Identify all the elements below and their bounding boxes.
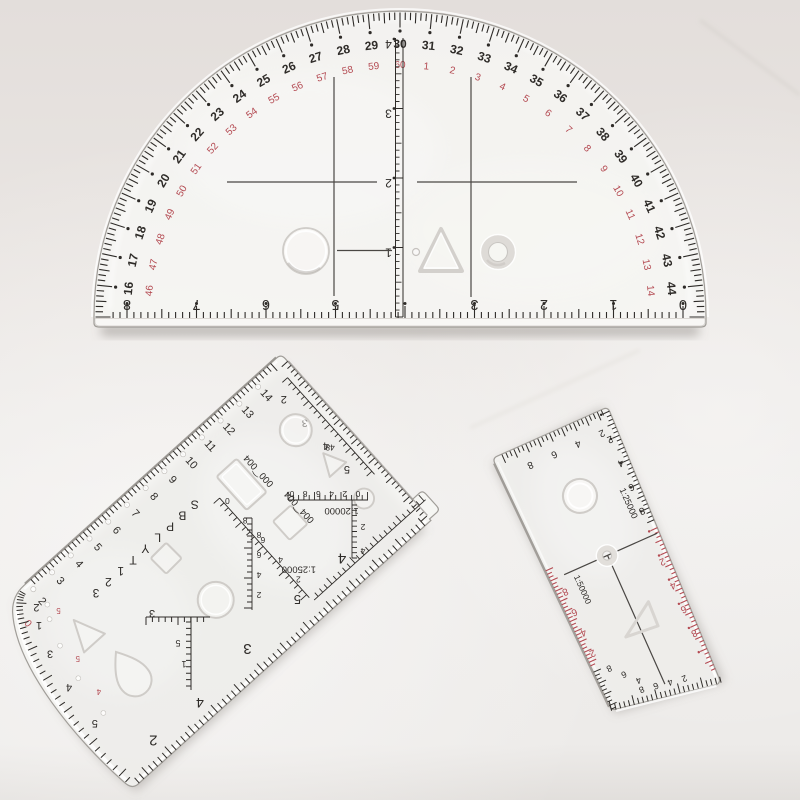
svg-text:3: 3: [470, 296, 478, 312]
svg-text:2: 2: [281, 393, 287, 405]
svg-text:6: 6: [256, 550, 261, 560]
svg-text:L: L: [154, 531, 161, 545]
svg-text:3: 3: [243, 640, 251, 657]
svg-text:6: 6: [262, 296, 270, 312]
svg-text:4: 4: [385, 37, 392, 51]
svg-text:P: P: [166, 520, 174, 534]
svg-text:2: 2: [149, 731, 157, 748]
svg-text:4: 4: [329, 489, 334, 499]
svg-text:31: 31: [421, 38, 436, 53]
svg-text:2: 2: [360, 522, 365, 532]
svg-text:5: 5: [56, 606, 61, 615]
svg-text:1: 1: [385, 246, 392, 260]
svg-text:3: 3: [149, 607, 155, 619]
svg-text:4: 4: [338, 549, 346, 566]
svg-text:1: 1: [181, 659, 186, 669]
svg-text:0: 0: [679, 296, 687, 312]
svg-text:4: 4: [278, 555, 283, 565]
svg-text:2: 2: [33, 601, 39, 613]
svg-text:8: 8: [123, 296, 131, 312]
svg-text:T: T: [129, 553, 137, 567]
svg-text:29: 29: [364, 38, 379, 53]
svg-text:3: 3: [47, 647, 53, 659]
svg-text:Y: Y: [141, 542, 149, 556]
svg-text:8: 8: [303, 489, 308, 499]
svg-text:46: 46: [144, 284, 156, 297]
svg-text:3: 3: [92, 586, 99, 600]
svg-text:2: 2: [296, 575, 301, 585]
svg-text:59: 59: [368, 61, 381, 73]
svg-text:44: 44: [664, 281, 679, 296]
svg-text:0: 0: [289, 489, 294, 499]
svg-text:5: 5: [92, 717, 98, 729]
svg-text:0: 0: [225, 496, 230, 506]
svg-text:B: B: [178, 508, 186, 522]
svg-text:S: S: [191, 497, 199, 511]
svg-text:5: 5: [331, 296, 339, 312]
svg-text:4: 4: [256, 570, 261, 580]
svg-text:2: 2: [105, 575, 112, 589]
svg-text:1: 1: [117, 564, 124, 578]
svg-text:16: 16: [121, 281, 136, 296]
svg-text:2: 2: [256, 590, 261, 600]
svg-text:6: 6: [316, 489, 321, 499]
svg-text:7: 7: [192, 296, 200, 312]
svg-text:1: 1: [36, 619, 42, 631]
svg-text:8: 8: [243, 515, 248, 525]
svg-text:14: 14: [644, 285, 656, 298]
svg-text:4: 4: [96, 687, 101, 696]
svg-text:2: 2: [385, 176, 392, 190]
svg-text:1: 1: [609, 296, 617, 312]
svg-text:2: 2: [342, 489, 347, 499]
svg-text:4: 4: [196, 695, 204, 711]
svg-text:48: 48: [325, 442, 335, 452]
svg-text:2: 2: [540, 296, 548, 312]
svg-text:60: 60: [394, 60, 406, 71]
svg-text:0: 0: [355, 489, 360, 499]
svg-text:3: 3: [385, 107, 392, 121]
svg-text:5: 5: [294, 592, 301, 607]
svg-text:5: 5: [75, 654, 80, 663]
svg-text:4: 4: [66, 681, 72, 693]
svg-text:8: 8: [256, 530, 261, 540]
svg-text:5: 5: [175, 638, 180, 648]
svg-text:5: 5: [344, 463, 350, 475]
svg-text:4: 4: [360, 546, 365, 556]
